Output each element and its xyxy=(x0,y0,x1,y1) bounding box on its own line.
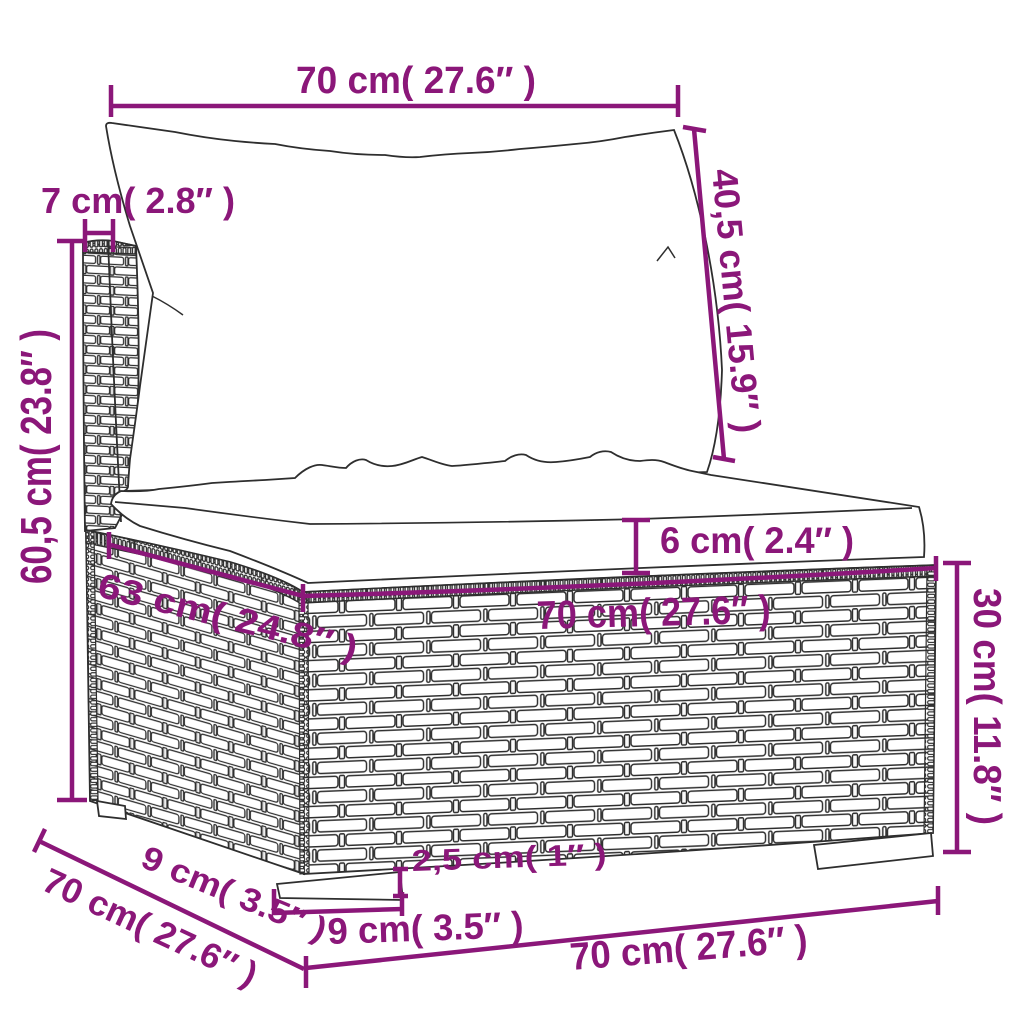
svg-text:70 cm( 27.6″ ): 70 cm( 27.6″ ) xyxy=(296,60,536,102)
svg-text:9 cm( 3.5″ ): 9 cm( 3.5″ ) xyxy=(327,904,524,952)
svg-text:2,5 cm( 1″ ): 2,5 cm( 1″ ) xyxy=(411,838,607,878)
svg-text:60,5 cm( 23.8″ ): 60,5 cm( 23.8″ ) xyxy=(12,329,61,584)
svg-text:70 cm( 27.6″ ): 70 cm( 27.6″ ) xyxy=(536,588,771,638)
svg-text:6 cm( 2.4″ ): 6 cm( 2.4″ ) xyxy=(660,519,854,561)
svg-text:30 cm( 11.8″ ): 30 cm( 11.8″ ) xyxy=(965,588,1008,825)
svg-text:7 cm( 2.8″ ): 7 cm( 2.8″ ) xyxy=(41,180,235,221)
